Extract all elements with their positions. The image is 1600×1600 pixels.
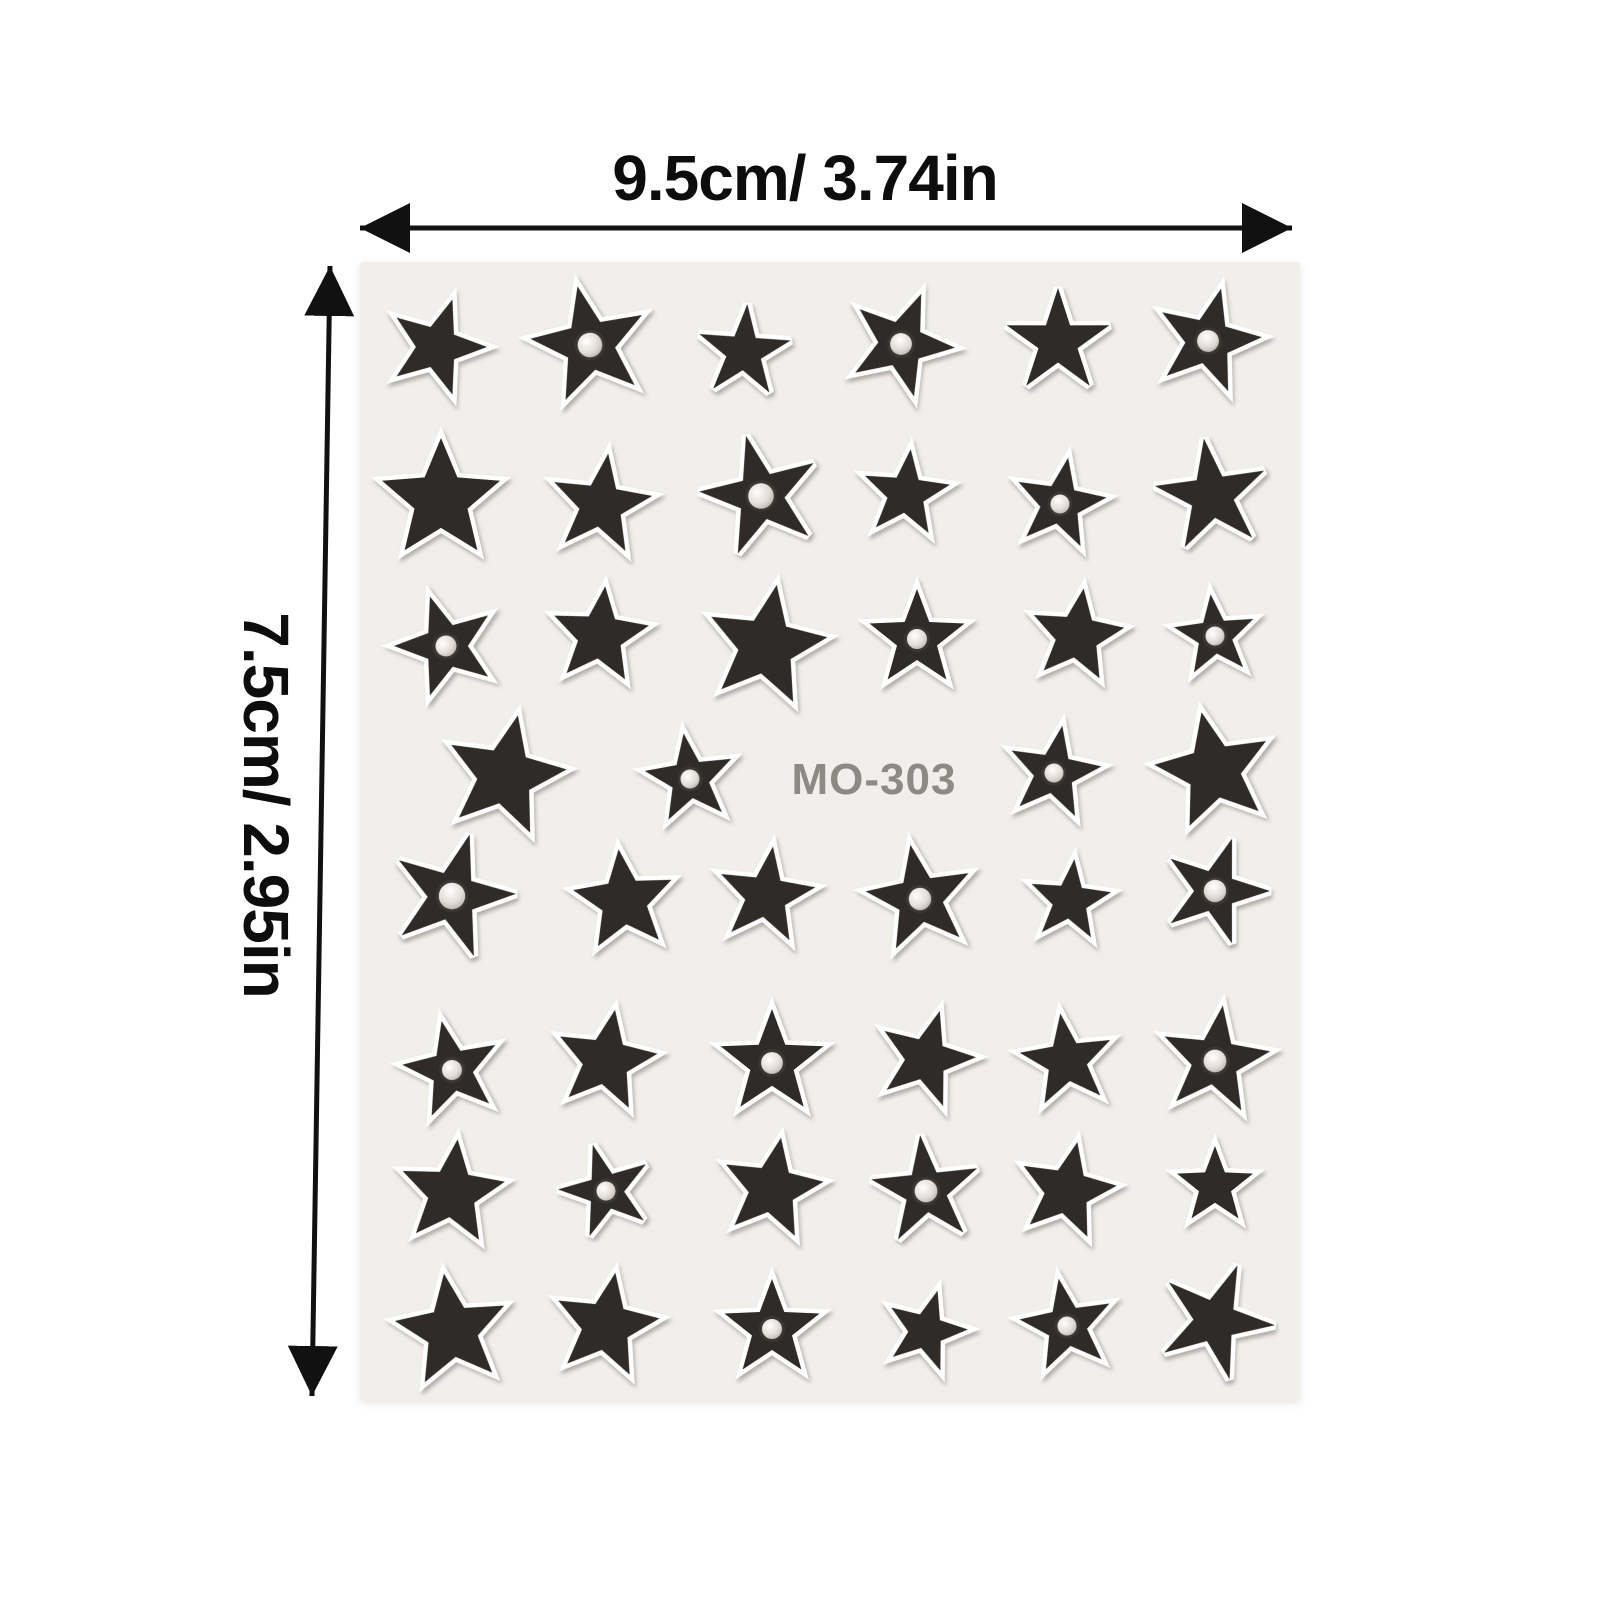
sticker-sheet	[360, 262, 1300, 1400]
width-dimension-label: 9.5cm/ 3.74in	[612, 146, 997, 210]
rhinestone-gem	[1203, 624, 1227, 648]
sheet-code-label: MO-303	[792, 755, 957, 804]
height-dimension-label: 7.5cm/ 2.95in	[234, 612, 298, 997]
rhinestone-gem	[760, 1051, 785, 1076]
product-dimension-image: MO-303 9.5cm/ 3.74in 7.5cm/ 2.95in	[0, 0, 1600, 1600]
rhinestone-gem	[678, 767, 703, 792]
height-dimension-arrow	[312, 266, 330, 1396]
rhinestone-gem	[912, 1177, 940, 1205]
rhinestone-gem	[761, 1318, 784, 1341]
rhinestone-gem	[906, 628, 929, 651]
